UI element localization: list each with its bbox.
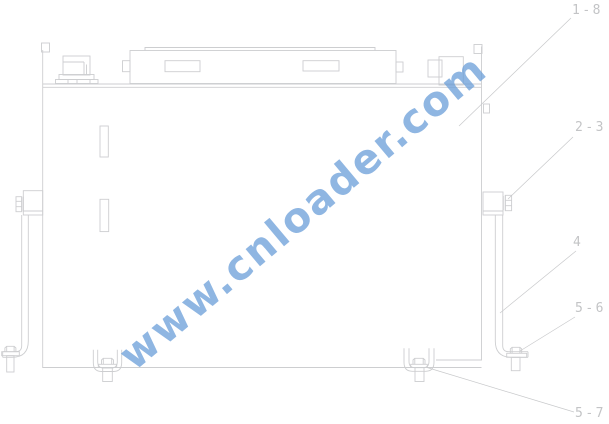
tank-assembly-drawing	[0, 0, 609, 424]
left-strap	[2, 215, 29, 372]
right-bracket	[483, 192, 512, 215]
callout-label-1-8: 1-8	[572, 4, 603, 18]
u-bracket-left	[93, 350, 121, 382]
top-box-right-clip	[396, 62, 403, 72]
top-box-left-clip	[123, 61, 131, 72]
top-box-handle-right	[303, 61, 339, 71]
left-bracket-bolt-icon	[16, 197, 22, 212]
tank-body	[42, 43, 490, 368]
u-bracket-right	[404, 348, 434, 381]
leader-1-8	[459, 18, 571, 126]
technical-drawing-canvas: 1-8 2-3 4 5-6 5-7 www.cnloader.com	[0, 0, 609, 424]
right-strap	[495, 215, 528, 371]
right-bracket-bolt-icon	[505, 195, 511, 210]
vent-slot-upper	[100, 126, 108, 157]
vent-slot-lower	[100, 199, 109, 231]
leader-4	[500, 251, 576, 313]
filler-cap-assembly	[56, 56, 99, 84]
leader-5-7	[427, 368, 574, 413]
u-bracket-left-bolt-icon	[98, 358, 116, 381]
leader-2-3	[508, 137, 573, 199]
top-right-fitting	[428, 57, 463, 85]
right-top-tab	[474, 45, 482, 54]
left-foot-bolt-icon	[2, 346, 20, 372]
callout-label-5-7: 5-7	[575, 407, 606, 421]
tank-top-plate	[43, 84, 482, 87]
left-bracket	[16, 191, 43, 215]
u-bracket-right-bolt-icon	[411, 358, 428, 381]
right-foot-bolt-icon	[507, 347, 527, 370]
leader-5-6	[520, 317, 575, 351]
right-side-tab	[484, 104, 490, 113]
callout-label-5-6: 5-6	[575, 302, 606, 316]
callout-label-2-3: 2-3	[575, 121, 606, 135]
top-box	[123, 48, 404, 84]
top-box-handle-left	[165, 61, 200, 72]
callout-label-4: 4	[573, 236, 583, 250]
